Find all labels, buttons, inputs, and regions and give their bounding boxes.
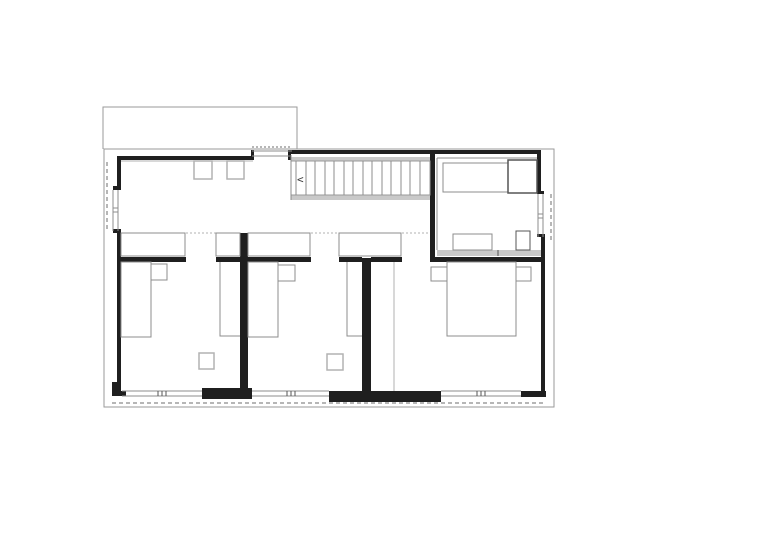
bathroom-vanity bbox=[453, 234, 492, 250]
jamb-left-window-bottom bbox=[113, 229, 121, 233]
floor-plan-page: < bbox=[0, 0, 780, 551]
skylight-2 bbox=[227, 161, 244, 179]
nightstand-2 bbox=[278, 265, 295, 281]
nightstand-3-left bbox=[431, 267, 447, 281]
wall-partition-2 bbox=[362, 258, 371, 391]
nightstand-1 bbox=[151, 264, 167, 280]
wall-corridor-seg-3 bbox=[248, 257, 311, 262]
skylight-1 bbox=[194, 161, 212, 179]
wall-corridor-seg-6 bbox=[430, 257, 541, 262]
wall-left-upper bbox=[117, 156, 121, 190]
building-roof-outline bbox=[104, 149, 554, 407]
jamb-left-window-top bbox=[113, 186, 121, 190]
closet-1 bbox=[220, 262, 240, 336]
bed-2 bbox=[248, 262, 278, 337]
wall-stair-bathroom bbox=[430, 152, 435, 262]
wall-partition-1 bbox=[240, 233, 248, 391]
stair-direction-arrow: < bbox=[297, 173, 304, 186]
stool-1 bbox=[199, 353, 214, 369]
wall-top-left bbox=[117, 156, 253, 160]
jamb-right-window-top bbox=[537, 191, 544, 194]
shower bbox=[508, 160, 537, 193]
stair-top-stringer bbox=[291, 157, 430, 161]
nightstand-3-right bbox=[516, 267, 531, 281]
wall-corridor-seg-4 bbox=[339, 257, 362, 262]
bed-1 bbox=[121, 262, 151, 337]
stair-outline bbox=[291, 161, 430, 195]
wall-corridor-seg-5 bbox=[371, 257, 402, 262]
bed-3 bbox=[447, 262, 516, 336]
bathroom-counter bbox=[437, 250, 541, 256]
floor-plan-svg: < bbox=[0, 0, 780, 551]
wall-bottom-right-corner bbox=[521, 391, 546, 397]
stair-bottom-stringer bbox=[291, 195, 430, 200]
hall-closet-3 bbox=[248, 233, 310, 256]
hall-closet-4 bbox=[339, 233, 401, 256]
wall-corridor-seg-1 bbox=[121, 257, 186, 262]
shapes-layer: < bbox=[103, 107, 554, 407]
annex-roof-outline bbox=[103, 107, 297, 149]
wall-right-main bbox=[541, 237, 545, 391]
bathroom-toilet bbox=[516, 231, 530, 250]
bathtub bbox=[443, 163, 508, 192]
wall-bottom-left-return bbox=[112, 391, 126, 396]
stool-2 bbox=[327, 354, 343, 370]
hall-closet-1 bbox=[121, 233, 185, 256]
wall-corridor-seg-2 bbox=[216, 257, 240, 262]
wall-bottom-pier-2 bbox=[329, 391, 441, 402]
wall-left-lower bbox=[117, 231, 121, 384]
wall-top-main bbox=[290, 150, 541, 154]
hall-closet-2 bbox=[216, 233, 240, 256]
closet-2 bbox=[347, 262, 362, 336]
